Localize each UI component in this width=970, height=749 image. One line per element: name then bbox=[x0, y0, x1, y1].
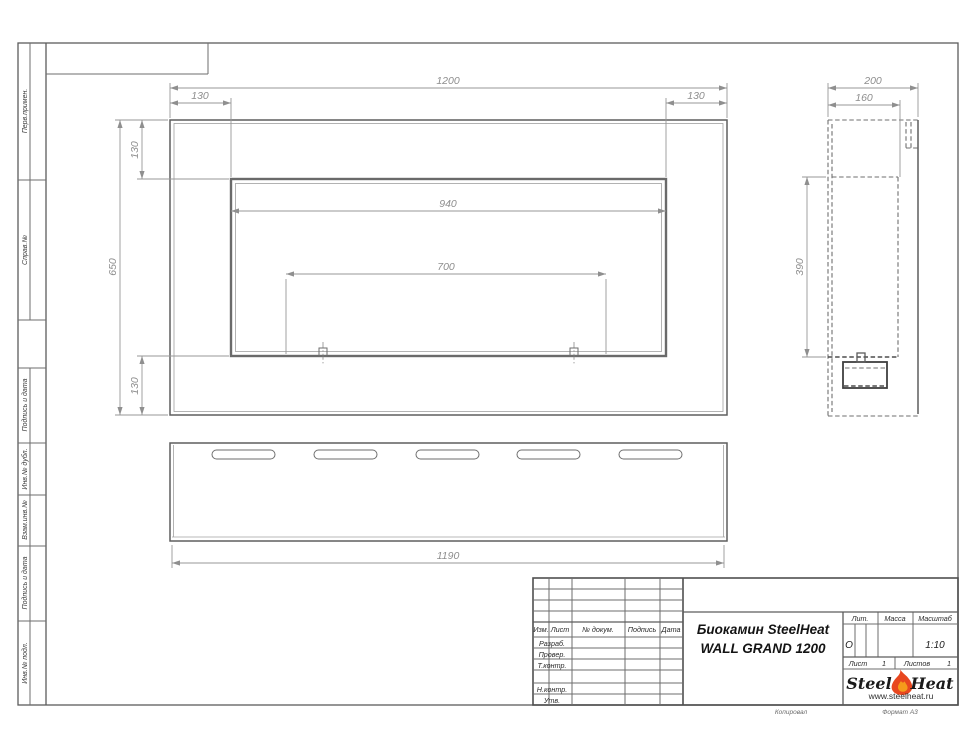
dim-front-inset-bottom: 130 bbox=[129, 377, 141, 395]
dim-front-burner-span: 700 bbox=[437, 261, 455, 273]
tb-col-list: Лист bbox=[550, 625, 570, 634]
bottom-view bbox=[170, 443, 727, 541]
footer-copied-label: Копировал bbox=[775, 709, 808, 716]
sheet-frame bbox=[18, 43, 958, 705]
bottom-view-dimensions: 1190 bbox=[172, 545, 724, 568]
mounting-bracket bbox=[906, 122, 918, 148]
burner-box bbox=[843, 353, 887, 388]
tb-sheets-total-label: Листов bbox=[903, 659, 930, 668]
document-title-line1: Биокамин SteelHeat bbox=[697, 622, 830, 637]
tb-col-podpis: Подпись bbox=[628, 625, 657, 634]
tb-sheet-label: Лист bbox=[848, 659, 868, 668]
margin-label-inv-podl: Инв.№ подл. bbox=[21, 642, 29, 684]
tb-mass-label: Масса bbox=[884, 614, 905, 623]
dim-bottom-length-back: 1190 bbox=[437, 550, 460, 562]
margin-label-vzam-inv: Взам.инв.№ bbox=[22, 500, 29, 540]
document-title-line2: WALL GRAND 1200 bbox=[700, 641, 826, 656]
drawing-sheet: Перв.примен. Справ.№ Подпись и дата Инв.… bbox=[0, 0, 970, 749]
dim-front-inset-left: 130 bbox=[191, 90, 209, 102]
vent-slots bbox=[212, 450, 682, 459]
tb-row-prover: Провер. bbox=[539, 650, 566, 659]
dim-side-opening-height: 390 bbox=[794, 258, 806, 276]
vent-slot bbox=[212, 450, 275, 459]
tb-scale-value: 1:10 bbox=[925, 640, 945, 651]
side-view bbox=[828, 100, 918, 416]
dim-front-height-total: 650 bbox=[107, 258, 119, 276]
vent-slot bbox=[314, 450, 377, 459]
dim-front-opening-width: 940 bbox=[439, 198, 457, 210]
tb-col-dokum: № докум. bbox=[582, 625, 614, 634]
dim-front-width-total: 1200 bbox=[436, 75, 460, 87]
tb-row-nkontr: Н.контр. bbox=[537, 685, 567, 694]
steelheat-logo: Steel Heat www.steelheat.ru bbox=[846, 669, 954, 701]
dim-front-inset-top: 130 bbox=[129, 141, 141, 159]
tb-lit-value: О bbox=[845, 640, 853, 651]
margin-label-perv-primen: Перв.примен. bbox=[22, 89, 29, 134]
tb-sheets-total-value: 1 bbox=[947, 659, 951, 668]
sheet-footer: Копировал Формат А3 bbox=[775, 709, 918, 716]
tb-lit-label: Лит. bbox=[851, 614, 869, 623]
front-view-dimensions: 1200 130 130 650 130 130 940 700 bbox=[107, 75, 727, 415]
vent-slot bbox=[619, 450, 682, 459]
vent-slot bbox=[416, 450, 479, 459]
margin-label-inv-dubl: Инв.№ дубл. bbox=[21, 448, 29, 489]
margin-labels: Перв.примен. Справ.№ Подпись и дата Инв.… bbox=[21, 89, 29, 684]
tb-row-razrab: Разраб. bbox=[539, 639, 565, 648]
dim-side-depth-total: 200 bbox=[863, 75, 882, 87]
dim-side-depth-inner: 160 bbox=[855, 92, 873, 104]
vent-slot bbox=[517, 450, 580, 459]
tb-row-tkontr: Т.контр. bbox=[538, 661, 567, 670]
tb-col-izm: Изм. bbox=[533, 625, 548, 634]
drawing-canvas: Перв.примен. Справ.№ Подпись и дата Инв.… bbox=[0, 0, 970, 749]
logo-website: www.steelheat.ru bbox=[868, 691, 934, 701]
margin-label-podpis-data-2: Подпись и дата bbox=[21, 556, 29, 609]
tb-row-utv: Утв. bbox=[543, 696, 560, 705]
dim-front-inset-right: 130 bbox=[687, 90, 705, 102]
side-view-dimensions: 200 160 390 bbox=[794, 75, 918, 357]
tb-sheet-value: 1 bbox=[882, 659, 886, 668]
tb-col-data: Дата bbox=[661, 625, 681, 634]
margin-label-podpis-data-1: Подпись и дата bbox=[21, 378, 29, 431]
tb-scale-label: Масштаб bbox=[918, 614, 953, 623]
footer-format-label: Формат А3 bbox=[882, 709, 918, 716]
margin-label-sprav-no: Справ.№ bbox=[22, 235, 29, 265]
